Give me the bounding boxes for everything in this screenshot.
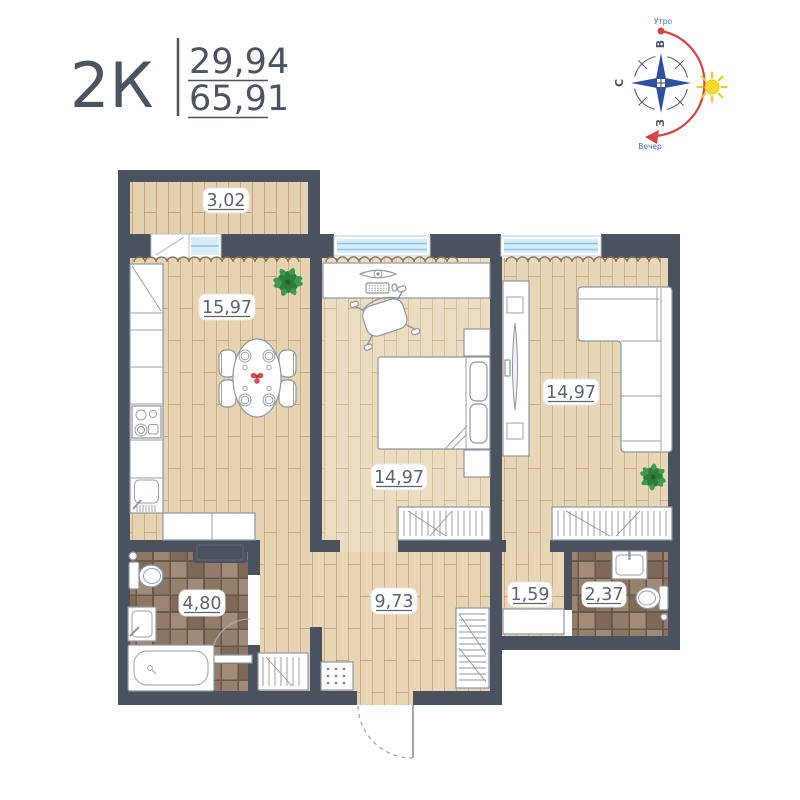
passage-floor	[310, 548, 322, 627]
wc-area-label: 2,37	[582, 582, 626, 607]
plan-type-label: 2К	[70, 49, 153, 122]
balcony-left-wall	[118, 170, 130, 234]
hall-area-label: 9,73	[371, 588, 417, 614]
bottom-mid-wall	[413, 691, 500, 705]
bathroom-right-wall	[248, 540, 260, 575]
corridor-area-label: 1,59	[508, 582, 552, 607]
mouse	[392, 284, 397, 291]
svg-text:4,80: 4,80	[183, 594, 222, 614]
kitchen-bedroom-wall-stub	[310, 540, 340, 552]
svg-text:3,02: 3,02	[207, 191, 246, 211]
hall-closet	[456, 608, 489, 688]
balcony-area-label: 3,02	[203, 188, 249, 213]
balcony-window	[189, 234, 221, 258]
compass-west-label: З	[654, 119, 667, 127]
bathroom-door-leaf	[210, 655, 252, 663]
keyboard	[366, 283, 389, 293]
floor-drain	[661, 614, 667, 620]
sun-path-start-dot	[658, 28, 665, 35]
tv-stand	[503, 281, 529, 456]
bedroom-wardrobe	[398, 507, 490, 540]
living-area-value: 29,94	[189, 42, 289, 82]
desk	[323, 263, 490, 298]
living-bottom-wall	[550, 540, 680, 552]
header: 2К 29,94 65,91	[70, 38, 289, 122]
living-window	[501, 236, 601, 256]
wc-toilet	[636, 586, 668, 610]
wc-sink	[612, 551, 647, 579]
kitchen-counter-bottom	[163, 513, 255, 540]
dining-chair	[279, 380, 296, 407]
bathroom-sink	[128, 607, 156, 641]
living-wardrobe	[552, 507, 672, 540]
balcony-top-wall	[118, 170, 320, 182]
kitchen-area-label: 15,97	[199, 294, 255, 320]
total-area-value: 65,91	[189, 79, 289, 119]
svg-text:14,97: 14,97	[374, 468, 424, 488]
bedroom-area-label: 14,97	[371, 464, 427, 490]
svg-text:1,59: 1,59	[511, 585, 550, 605]
kitchen-counter	[130, 264, 163, 513]
bed	[378, 357, 490, 449]
compass: В С З Утро Вечер	[613, 17, 727, 151]
doormat	[321, 662, 353, 690]
top-wall	[221, 234, 334, 258]
bedroom-window	[334, 236, 430, 256]
hall-bathroom-wall	[310, 627, 322, 691]
svg-text:2,37: 2,37	[585, 585, 624, 605]
morning-label: Утро	[654, 17, 673, 26]
corridor-cabinet	[503, 609, 564, 634]
sun-icon	[698, 73, 727, 102]
nightstand	[464, 329, 490, 356]
compass-east-label: В	[654, 40, 667, 48]
dining-chair	[279, 350, 296, 377]
nightstand	[464, 450, 490, 477]
compass-center-cross	[653, 75, 669, 91]
svg-text:9,73: 9,73	[375, 592, 414, 612]
kitchen-bedroom-wall	[310, 256, 322, 548]
pillow	[470, 362, 487, 401]
stove	[132, 406, 161, 438]
bottom-right-wall	[500, 636, 680, 650]
svg-text:14,97: 14,97	[546, 383, 596, 403]
corridor-closet	[258, 653, 308, 690]
living-doorway-floor	[502, 540, 550, 552]
compass-north-label: С	[613, 79, 626, 87]
floorplan-canvas: 2К 29,94 65,91 В С З	[0, 0, 800, 800]
bedroom-bottom-wall	[398, 540, 506, 552]
pillow	[470, 404, 487, 443]
bathroom-area-label: 4,80	[179, 590, 225, 616]
evening-label: Вечер	[638, 142, 662, 151]
svg-text:15,97: 15,97	[202, 298, 252, 318]
entrance-door	[358, 705, 413, 758]
living-area-label: 14,97	[543, 379, 599, 405]
entrance-door-swing-arc	[358, 706, 412, 758]
balcony-right-wall	[308, 170, 320, 234]
top-wall	[430, 234, 501, 258]
entrance-floor	[357, 691, 413, 705]
bathtub	[128, 645, 214, 691]
bedroom-doorway-floor	[340, 540, 398, 552]
flush-button	[129, 552, 137, 560]
bedroom-living-wall	[490, 256, 502, 705]
bottom-left-wall	[118, 691, 357, 705]
balcony-door	[151, 234, 189, 258]
corridor-wc-wall	[564, 552, 572, 610]
